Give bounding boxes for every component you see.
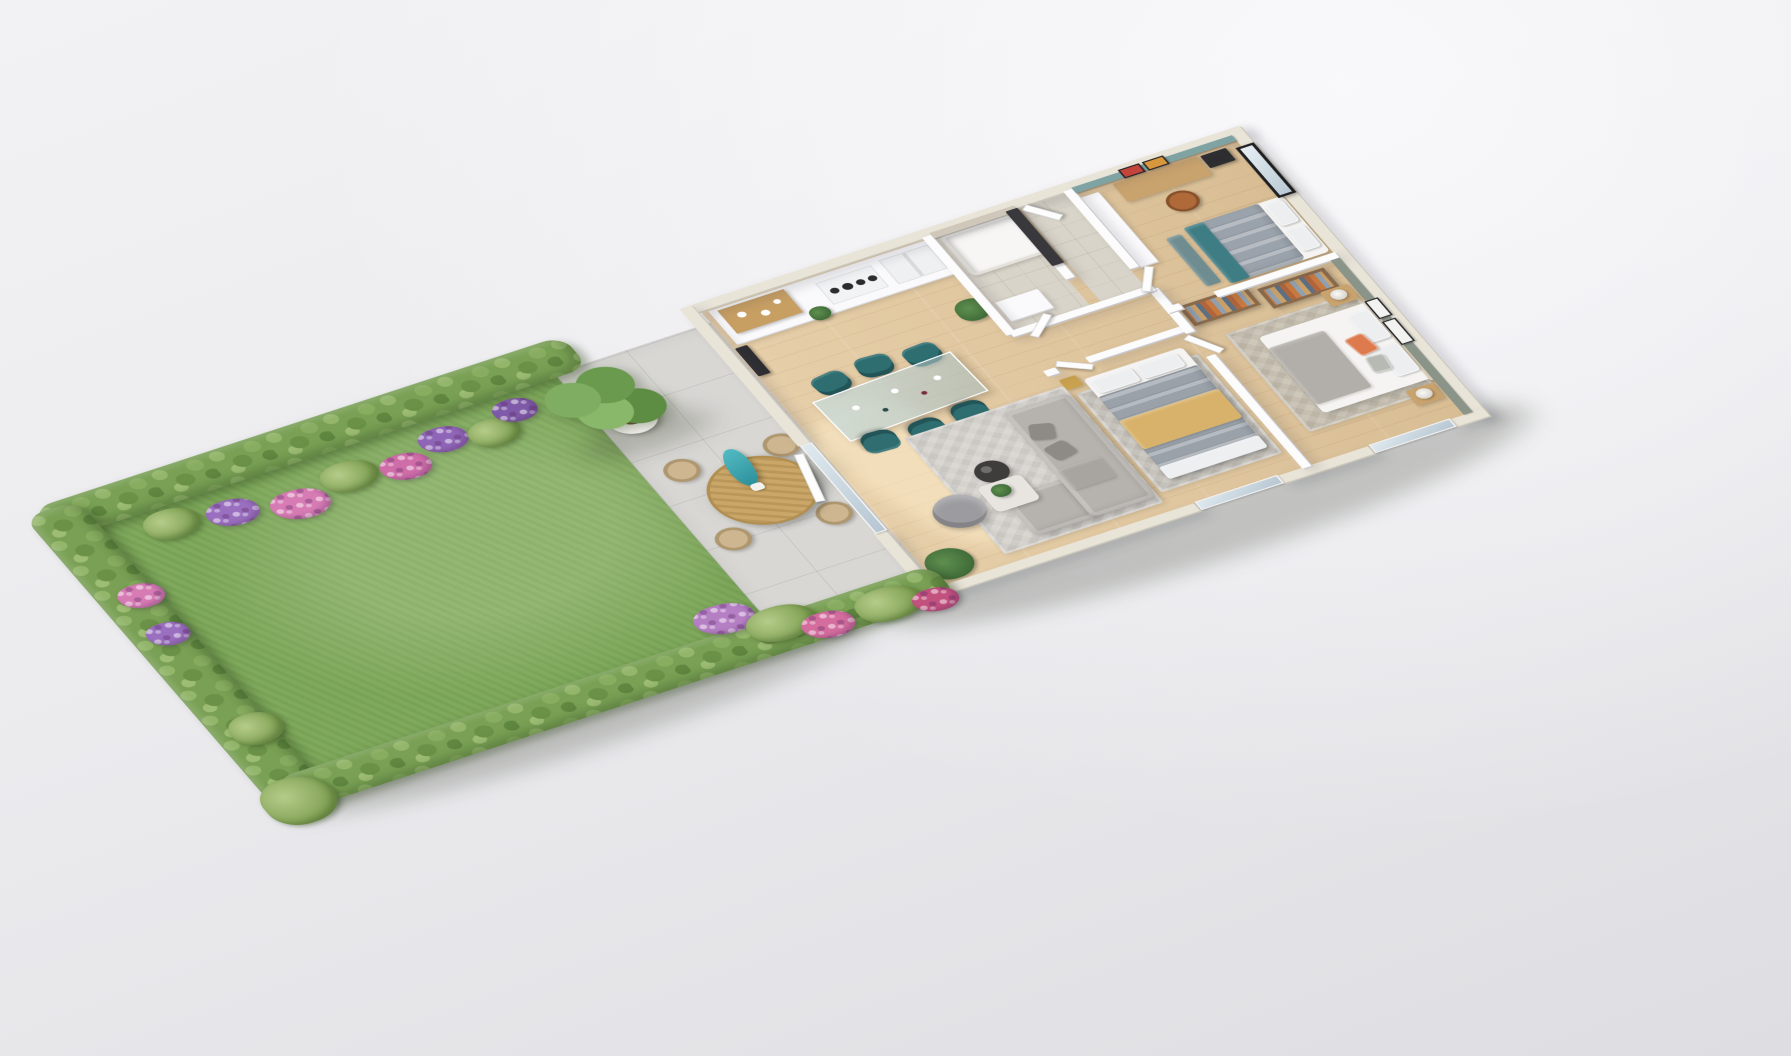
- sofa-cushion-1: [1028, 423, 1057, 441]
- page-background: { "scene_type": "3d-floorplan-render", "…: [0, 0, 1791, 1056]
- floor-plan-scene: [63, 131, 1496, 806]
